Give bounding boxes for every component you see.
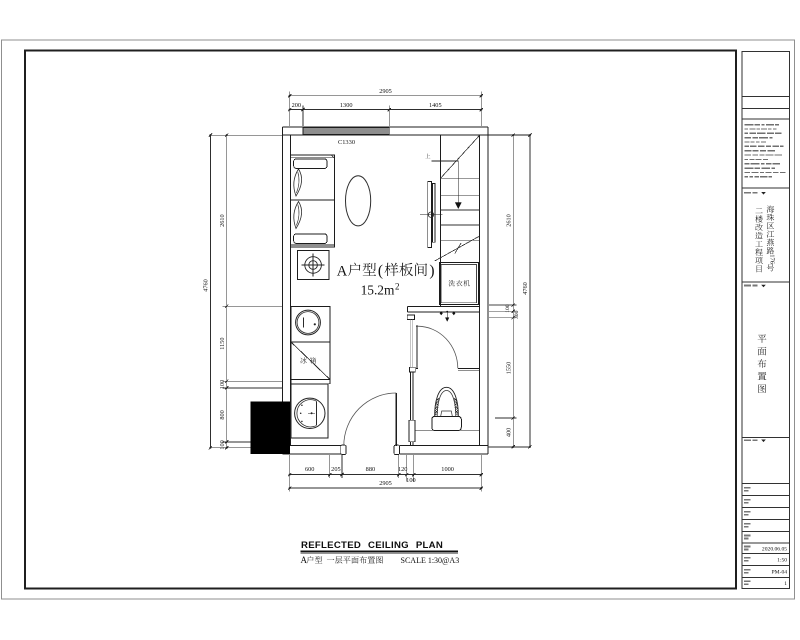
svg-text:2905: 2905: [379, 480, 392, 487]
svg-text:200: 200: [292, 102, 301, 109]
svg-text:2610: 2610: [506, 214, 513, 227]
svg-text:): ): [429, 263, 434, 280]
svg-text:120: 120: [398, 466, 407, 473]
svg-text:800: 800: [219, 410, 226, 419]
svg-text:1405: 1405: [429, 102, 442, 109]
svg-text:A: A: [337, 264, 348, 280]
svg-text:1:50: 1:50: [777, 558, 787, 564]
svg-text:PM-04: PM-04: [772, 570, 788, 576]
svg-text:2: 2: [395, 282, 400, 292]
svg-text:300: 300: [514, 310, 520, 319]
svg-text:C1330: C1330: [338, 139, 355, 146]
svg-text:176: 176: [768, 254, 775, 265]
svg-text:SCALE 1:30@A3: SCALE 1:30@A3: [401, 556, 460, 565]
svg-text:4760: 4760: [522, 282, 529, 295]
svg-text:1150: 1150: [219, 337, 226, 349]
svg-text:REFLECTED CEILING PLAN: REFLECTED CEILING PLAN: [301, 540, 443, 551]
svg-text:100: 100: [406, 477, 415, 484]
svg-text:600: 600: [305, 466, 314, 473]
svg-text:(: (: [378, 263, 383, 280]
svg-text:880: 880: [366, 466, 375, 473]
svg-text:15.2m: 15.2m: [361, 282, 395, 297]
svg-text:1000: 1000: [441, 466, 454, 473]
svg-text:1550: 1550: [506, 362, 513, 375]
svg-text:A: A: [301, 555, 308, 565]
svg-text:2610: 2610: [219, 214, 226, 227]
svg-text:2905: 2905: [379, 88, 392, 95]
svg-text:400: 400: [506, 428, 513, 437]
svg-text:2020.06.05: 2020.06.05: [762, 546, 787, 552]
svg-text:205: 205: [331, 466, 340, 473]
svg-text:100: 100: [219, 380, 226, 389]
svg-text:1300: 1300: [340, 102, 353, 109]
svg-text:100: 100: [219, 440, 226, 449]
svg-text:4760: 4760: [203, 279, 210, 292]
svg-text:1: 1: [784, 581, 787, 587]
svg-text:100: 100: [505, 304, 511, 313]
